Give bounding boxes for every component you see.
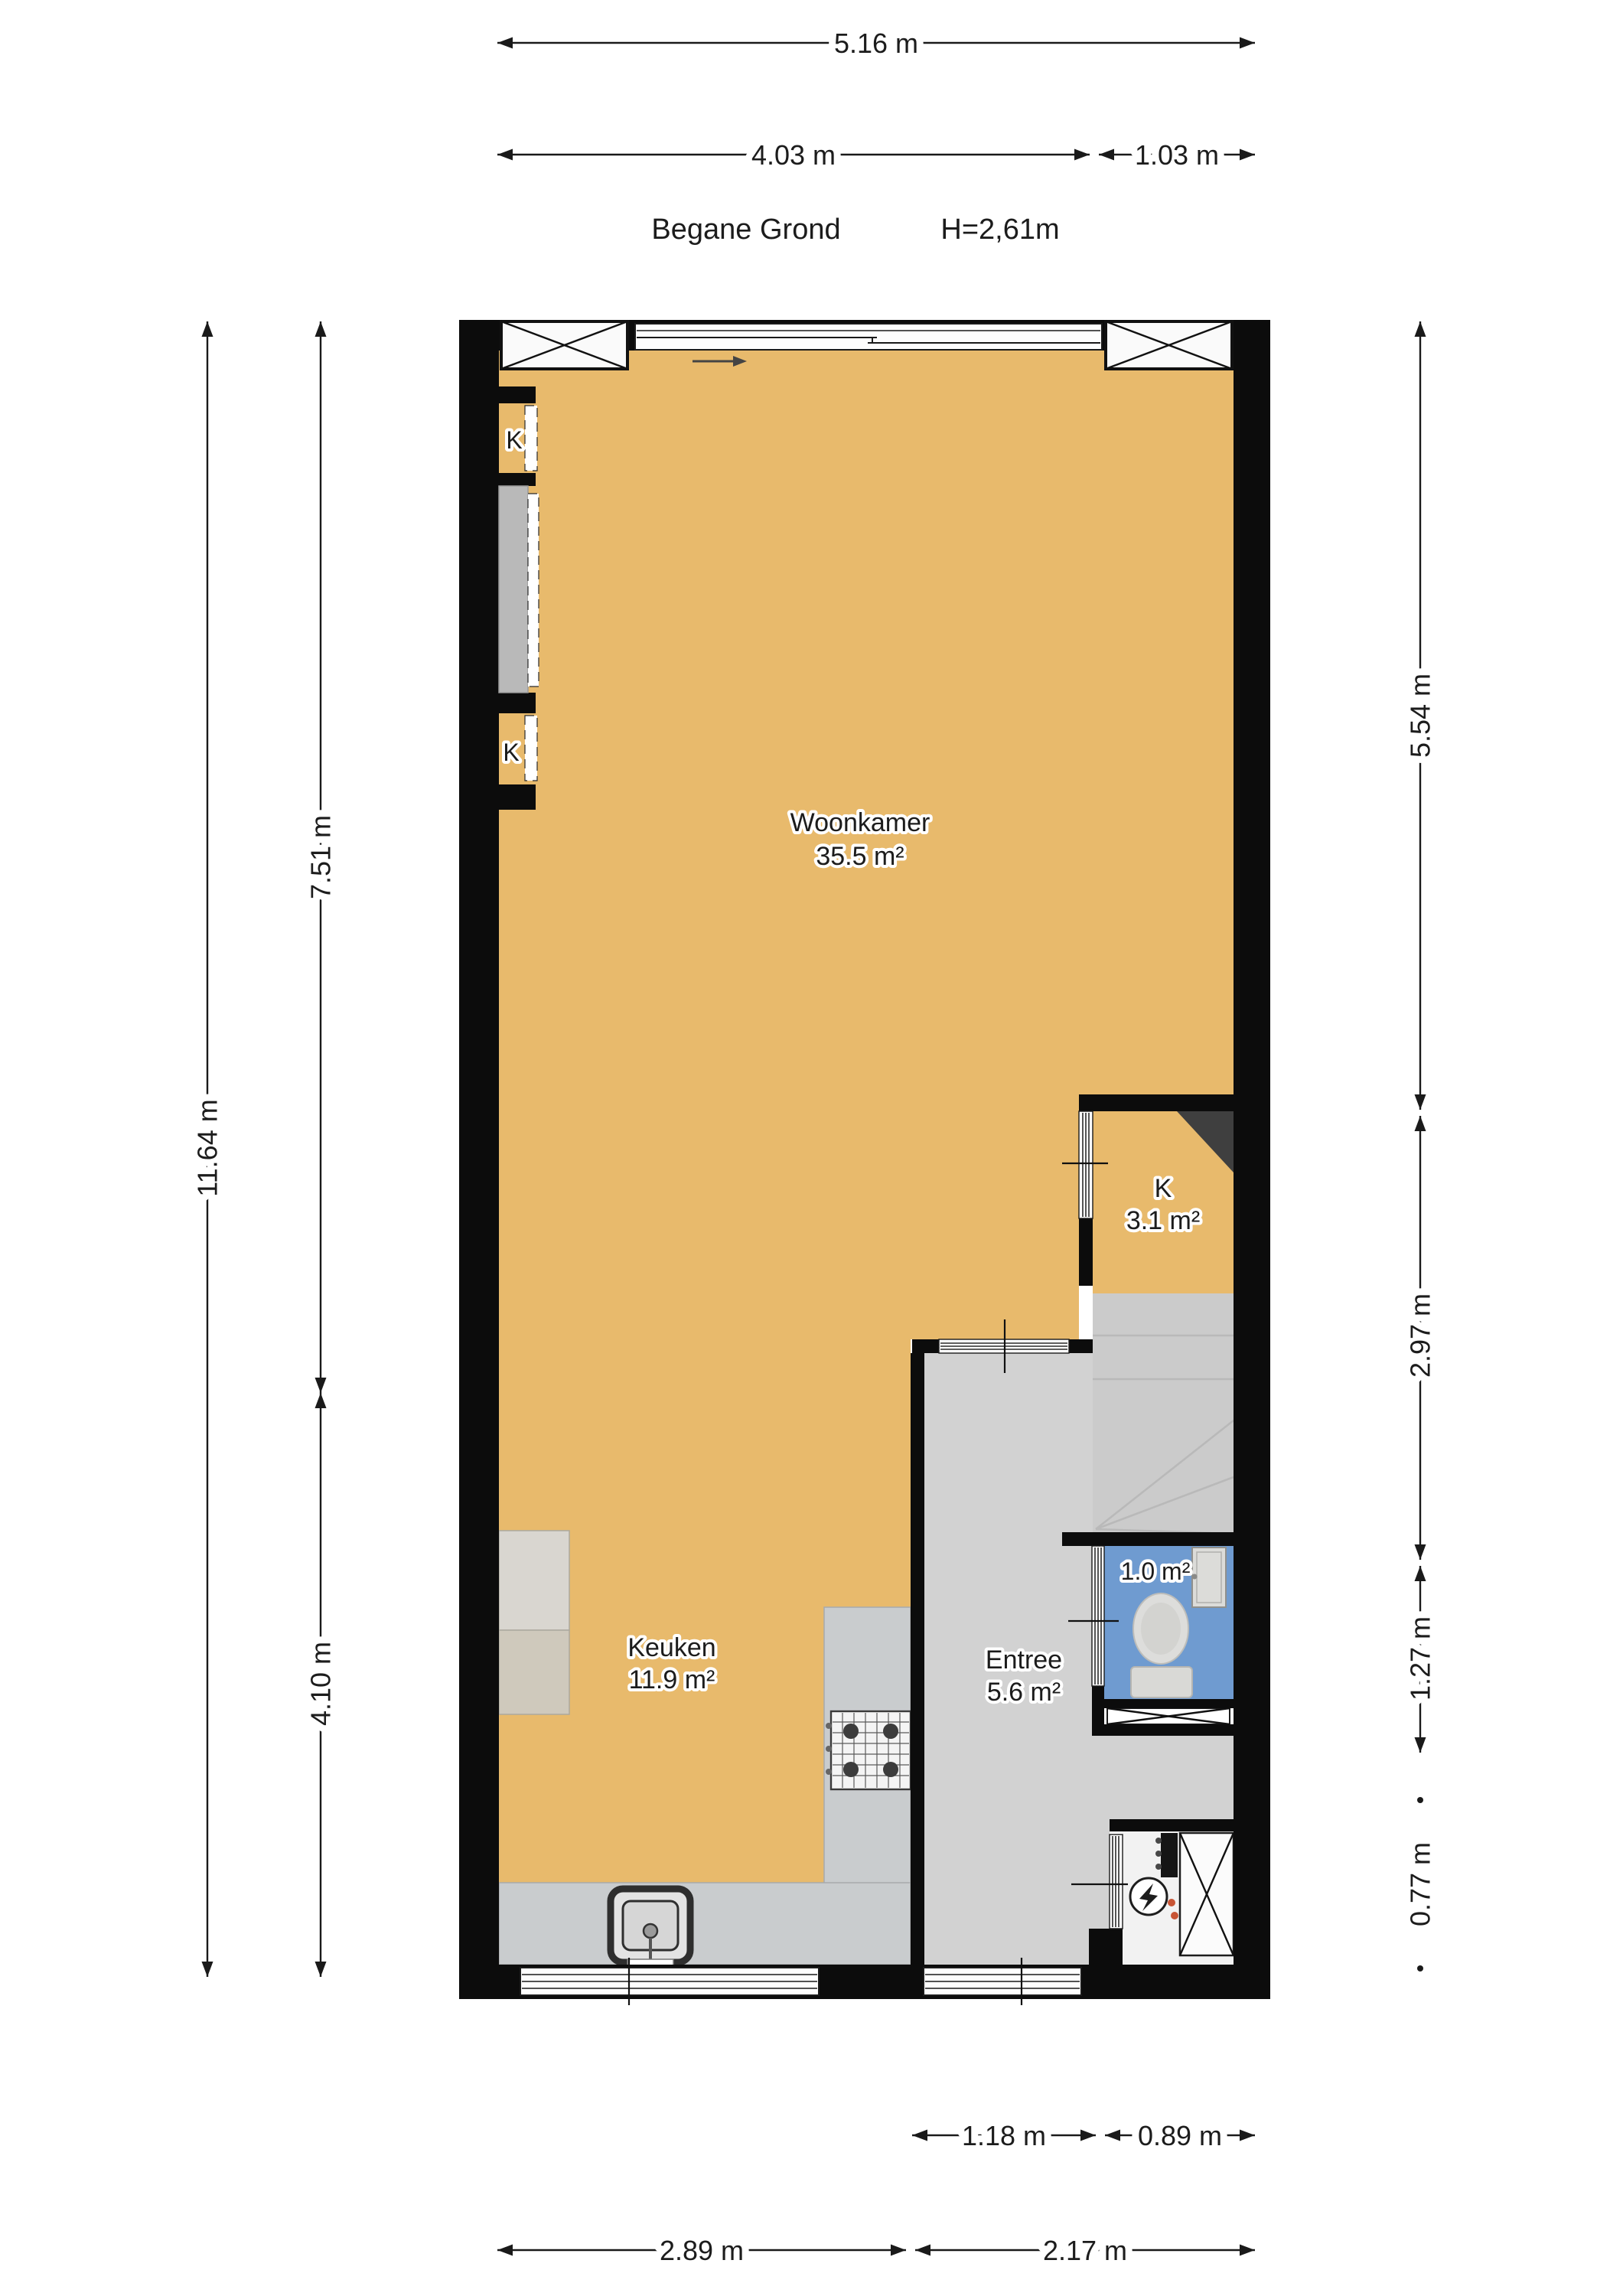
dimension-right-2: 2.97 m (1405, 1293, 1436, 1378)
closet-gray-cabinet (499, 486, 528, 693)
wall-left (459, 320, 499, 1999)
radiator-icon (1107, 1708, 1230, 1724)
closet-door-2 (525, 716, 537, 781)
dimension-right-3: 1.27 m (1405, 1616, 1436, 1701)
floorplan-page: 5.16 m 4.03 m 1.03 m 11.64 m 7.51 m 4.10… (0, 0, 1623, 2296)
dimension-left-total: 11.64 m (192, 1099, 223, 1196)
dimension-bottom-meter: 0.89 m (1138, 2120, 1222, 2151)
label-closet-1: K (506, 426, 522, 454)
label-keuken: Keuken (627, 1633, 715, 1662)
wall-toilet-bottom (1092, 1699, 1234, 1708)
label-keuken-area: 11.9 m² (629, 1665, 715, 1694)
wall-right (1234, 320, 1270, 1999)
dimension-bottom-keuken: 2.89 m (660, 2235, 744, 2266)
dimension-top-total: 5.16 m (834, 28, 918, 59)
wall-meter-left (1089, 1929, 1123, 1965)
stove-icon (826, 1711, 911, 1789)
floor-entree-right (1092, 1736, 1234, 1819)
label-closet-2: K (503, 739, 519, 766)
wall-kast-room-left (1079, 1218, 1093, 1286)
dimension-right-1: 5.54 m (1405, 673, 1436, 758)
toilet-cabinet-icon (1192, 1548, 1227, 1607)
label-kast-room-area: 3.1 m² (1126, 1206, 1200, 1235)
dimension-top-left: 4.03 m (751, 139, 836, 171)
dimension-bottom-door: 1.18 m (962, 2120, 1046, 2151)
dimension-right-4: 0.77 m (1405, 1842, 1436, 1926)
wall-toilet-top (1062, 1532, 1234, 1546)
wall-keuken-entree (911, 1353, 924, 1965)
label-woonkamer-area: 35.5 m² (816, 842, 904, 871)
floor-woonkamer (499, 351, 1234, 1094)
sink-icon (611, 1889, 690, 1973)
window-top (635, 324, 1102, 350)
wall-kast-room-top (1079, 1094, 1234, 1111)
closet-door-1 (525, 406, 537, 471)
fridge-cabinet-icon (499, 1531, 569, 1714)
shaft-box-top-left (501, 321, 627, 369)
dimension-top-right: 1.03 m (1135, 139, 1219, 171)
floor-entree-corridor (924, 1353, 1093, 1819)
ceiling-height-label: H=2,61m (940, 214, 1059, 246)
label-entree: Entree (986, 1645, 1062, 1675)
counter-bottom (499, 1883, 911, 1965)
label-kast-room: K (1155, 1174, 1172, 1203)
closet-door-gray (528, 494, 539, 687)
boiler-unit-icon (1161, 1833, 1178, 1877)
shaft-box-top-right (1106, 321, 1232, 369)
meter-accent-dot (1171, 1912, 1178, 1919)
label-woonkamer: Woonkamer (790, 808, 930, 837)
electric-meter-icon (1130, 1878, 1167, 1915)
floor-woonkamer-lower (499, 1094, 1079, 1339)
floor-title: Begane Grond (651, 214, 840, 246)
meter-accent-dot (1168, 1899, 1175, 1906)
wall-meter-top (1110, 1819, 1234, 1831)
toilet-icon (1131, 1593, 1192, 1698)
floor-entree-lower (924, 1819, 1110, 1965)
dimension-left-lower: 4.10 m (305, 1642, 337, 1726)
shaft-box-icon (1180, 1833, 1234, 1955)
dimension-left-upper: 7.51 m (305, 815, 337, 899)
label-entree-area: 5.6 m² (987, 1678, 1061, 1707)
label-toilet-area: 1.0 m² (1121, 1557, 1191, 1585)
dimension-bottom-entree: 2.17 m (1043, 2235, 1127, 2266)
floorplan-canvas: 5.16 m 4.03 m 1.03 m 11.64 m 7.51 m 4.10… (0, 0, 1623, 2296)
floor-stairs (1093, 1293, 1234, 1534)
